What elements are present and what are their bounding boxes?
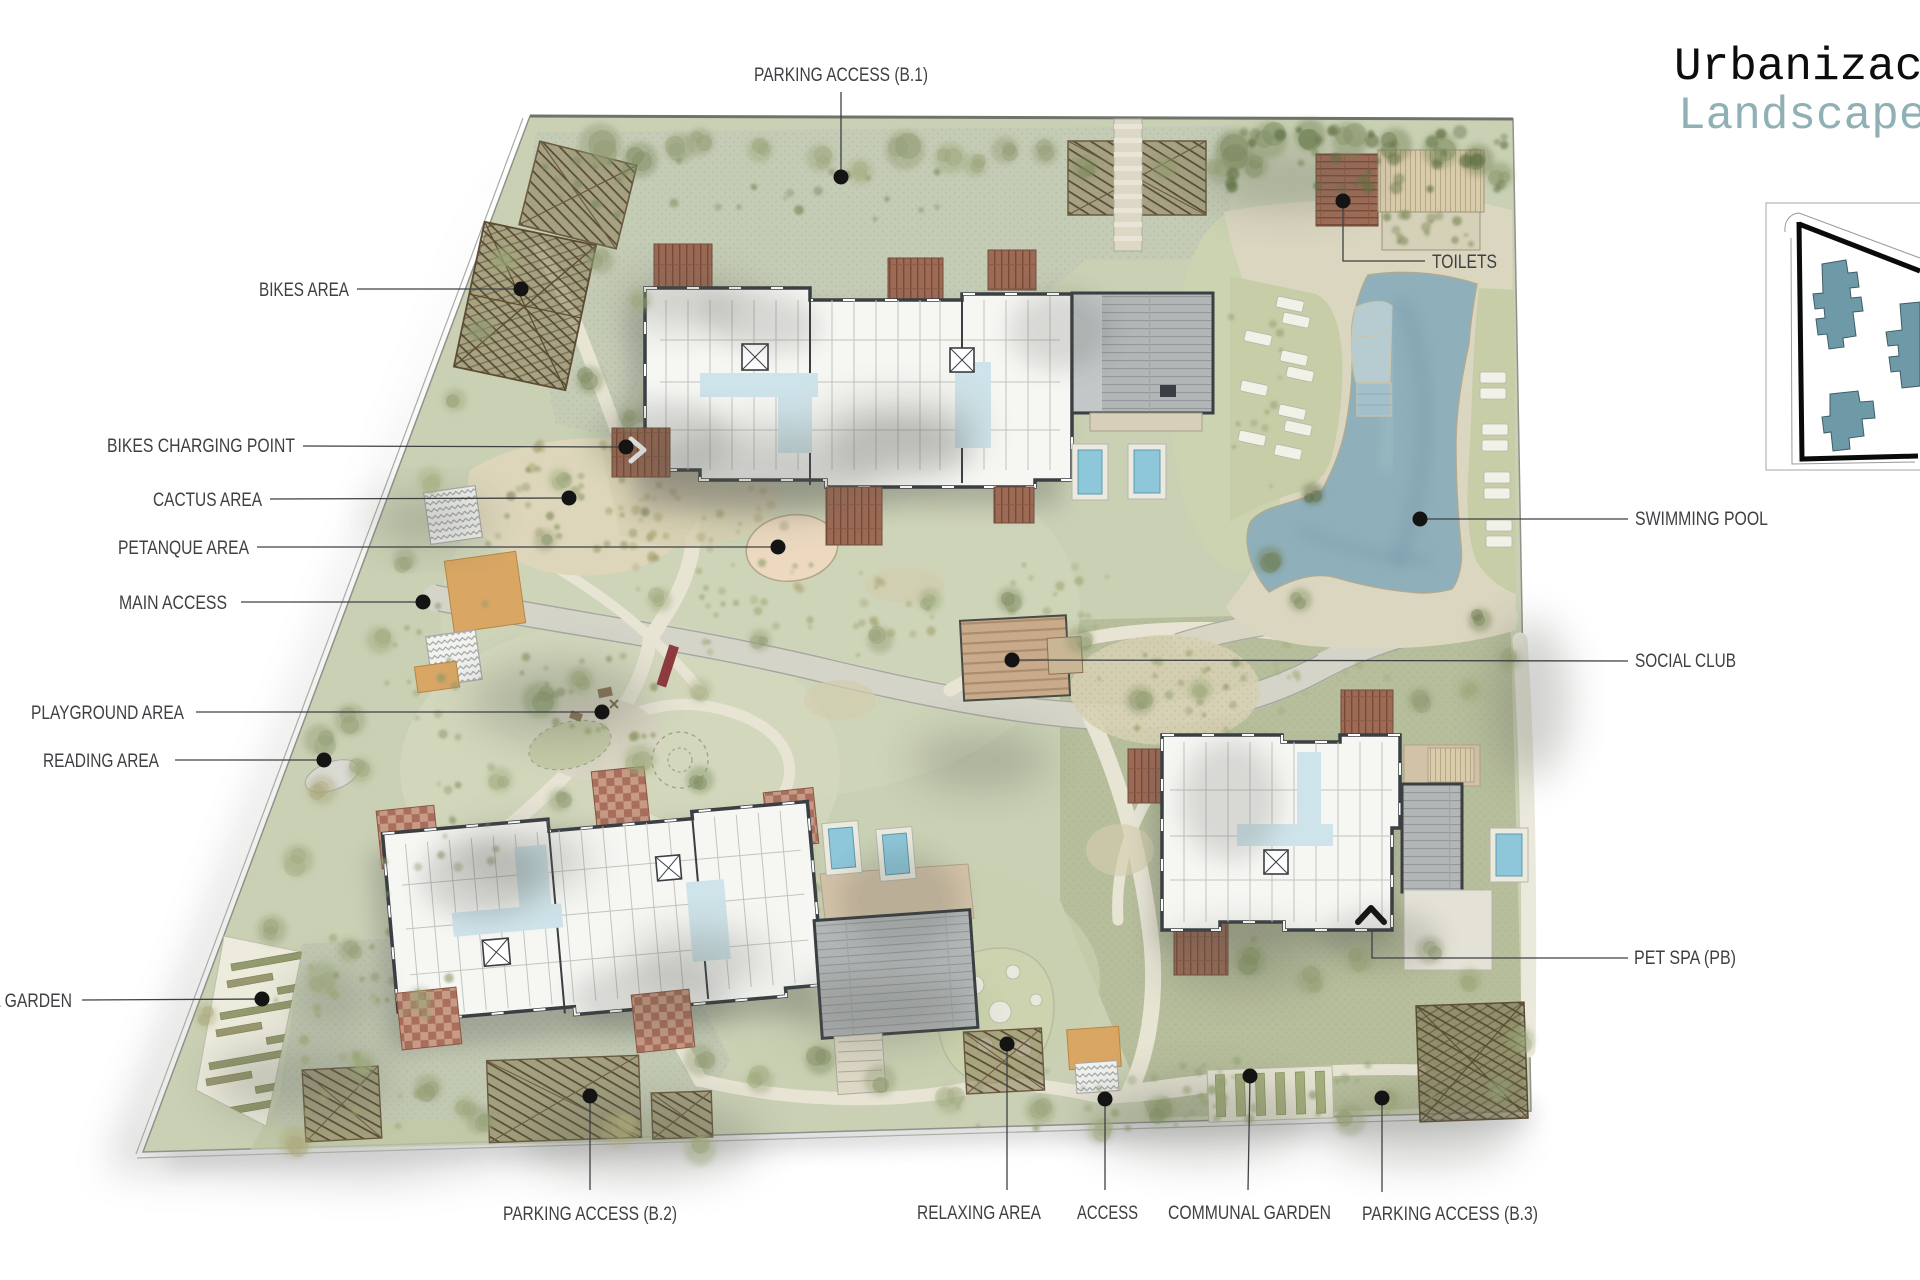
svg-text:MAIN ACCESS: MAIN ACCESS — [119, 592, 227, 614]
svg-text:PET SPA (PB): PET SPA (PB) — [1634, 947, 1736, 969]
svg-text:PARKING ACCESS (B.3): PARKING ACCESS (B.3) — [1362, 1203, 1538, 1225]
svg-text:PARKING ACCESS (B.1): PARKING ACCESS (B.1) — [754, 64, 928, 86]
svg-text:READING AREA: READING AREA — [43, 750, 159, 772]
svg-text:COMMUNAL GARDEN: COMMUNAL GARDEN — [1168, 1202, 1331, 1224]
svg-text:COMMUNAL GARDEN: COMMUNAL GARDEN — [0, 990, 72, 1012]
svg-text:TOILETS: TOILETS — [1432, 251, 1497, 273]
svg-text:PETANQUE AREA: PETANQUE AREA — [118, 537, 249, 559]
svg-text:Landscape Plan: Landscape Plan — [1678, 90, 1920, 142]
svg-text:PARKING ACCESS (B.2): PARKING ACCESS (B.2) — [503, 1203, 677, 1225]
svg-text:BIKES AREA: BIKES AREA — [259, 279, 349, 301]
svg-text:ACCESS: ACCESS — [1077, 1202, 1138, 1224]
svg-text:CACTUS AREA: CACTUS AREA — [153, 489, 262, 511]
svg-text:PLAYGROUND AREA: PLAYGROUND AREA — [31, 702, 184, 724]
svg-text:RELAXING AREA: RELAXING AREA — [917, 1202, 1041, 1224]
svg-text:SOCIAL CLUB: SOCIAL CLUB — [1635, 650, 1736, 672]
svg-text:Urbanización: Urbanización — [1674, 41, 1920, 93]
svg-text:BIKES CHARGING POINT: BIKES CHARGING POINT — [107, 435, 295, 457]
svg-text:SWIMMING POOL: SWIMMING POOL — [1635, 508, 1768, 530]
